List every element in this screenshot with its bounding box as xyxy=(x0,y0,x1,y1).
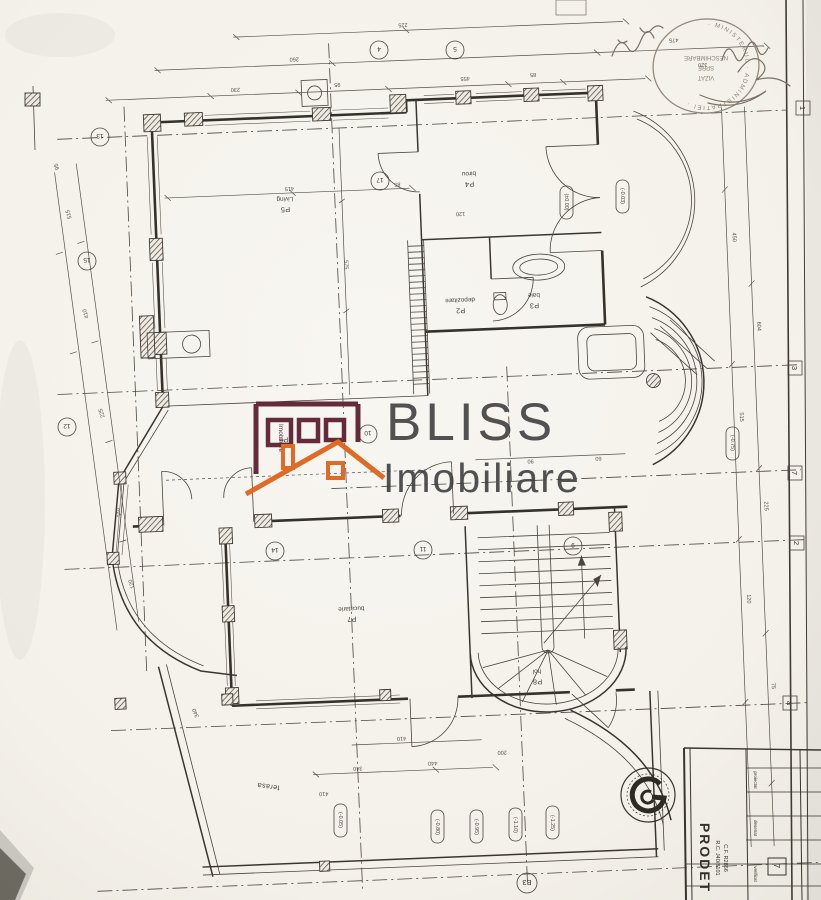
stamp-inner-line-1: VIZAT xyxy=(697,74,714,80)
room-name-living: Living xyxy=(276,195,293,203)
dim-text: 230 xyxy=(231,86,241,92)
tag-13: 13 xyxy=(96,132,104,139)
dim-text: 415 xyxy=(285,185,295,191)
level-003: (-0.03) xyxy=(619,188,625,204)
titleblock-row-3: verificat xyxy=(753,866,758,882)
room-name-depozitare: depozitare xyxy=(445,296,476,304)
level-110: (-1.10) xyxy=(512,817,518,833)
tag-10: 10 xyxy=(364,429,372,436)
dim-text: 340 xyxy=(353,765,363,771)
dim-text: 260 xyxy=(289,56,299,62)
dim-text: 410 xyxy=(397,735,407,741)
titleblock-row-2: desenat xyxy=(753,820,758,837)
dim-text: 515 xyxy=(738,412,744,422)
dim-text: 75 xyxy=(770,683,776,689)
dim-text: 450 xyxy=(731,232,737,242)
titleblock-reg1: R.C. J40/8101 xyxy=(714,840,720,875)
room-label-p2: P2 xyxy=(455,306,465,315)
dim-text: 475 xyxy=(669,36,679,42)
dim-text: 604 xyxy=(755,322,761,332)
level-000: (±0.00) xyxy=(563,193,569,210)
level-075: (-0.75) xyxy=(729,435,735,451)
grid-bubble-b3: B3 xyxy=(522,878,531,887)
stamp-inner-line-3: NESCHIMBARE xyxy=(684,54,728,60)
scanned-floor-plan: 225 260 475 230 95 455 85 320 450 604 51… xyxy=(0,0,821,900)
room-label-p5: P5 xyxy=(280,205,290,214)
tag-17: 17 xyxy=(376,176,384,183)
room-label-p3: P3 xyxy=(529,301,539,310)
level-080: (-0.80) xyxy=(434,819,440,835)
sheet-number: 7 xyxy=(772,864,781,869)
room-name-baie: baie xyxy=(527,291,540,298)
watermark-line2: Imobiliare xyxy=(383,455,581,501)
room-name-birou: birou xyxy=(461,170,476,178)
dim-text: 120 xyxy=(745,594,751,604)
dim-text: 410 xyxy=(319,790,329,796)
tag-5: 5 xyxy=(453,45,457,52)
dim-text: 200 xyxy=(497,749,507,755)
dim-text: 440 xyxy=(428,760,438,766)
room-name-bucatarie: bucatarie xyxy=(338,604,365,612)
watermark-line1: BLISS xyxy=(386,393,556,452)
titleblock-company: PRODET xyxy=(697,823,713,893)
dim-text: 95 xyxy=(334,81,340,87)
room-name-hol: hol xyxy=(533,667,542,674)
grid-bubble-2: 2 xyxy=(792,541,801,545)
floor-plan-canvas: 225 260 475 230 95 455 85 320 450 604 51… xyxy=(0,0,821,900)
level-095: (-0.95) xyxy=(473,819,479,835)
dim-text: 85 xyxy=(530,71,536,77)
titleblock-row-1: proiectat xyxy=(753,771,758,789)
tag-14: 14 xyxy=(271,546,279,553)
room-label-p4: P4 xyxy=(464,180,474,189)
grid-bubble-7: 7 xyxy=(790,471,799,475)
dim-text: 225 xyxy=(398,21,408,27)
tag-4: 4 xyxy=(377,45,381,52)
room-label-p7: P7 xyxy=(347,615,357,624)
level-125: (-1.25) xyxy=(549,815,555,831)
tag-12: 12 xyxy=(63,422,71,429)
dim-text: 225 xyxy=(762,501,768,511)
level-005: (-0.05) xyxy=(337,812,343,828)
dim-text: 85 xyxy=(394,181,400,187)
grid-bubble-1: 1 xyxy=(798,106,807,110)
tag-15: 15 xyxy=(83,256,91,263)
stamp-inner-line-2: SPRE xyxy=(698,64,714,70)
room-label-p8: P8 xyxy=(532,677,542,686)
grid-bubble-3: 3 xyxy=(790,366,799,370)
tag-11: 11 xyxy=(419,545,426,552)
dim-text: 60 xyxy=(595,455,601,461)
titleblock-reg2: C.F. R2856 xyxy=(722,844,728,872)
tag-9: 9 xyxy=(571,541,575,548)
dim-text: 455 xyxy=(460,75,470,81)
dim-text: 120 xyxy=(456,210,466,216)
dim-text: 575 xyxy=(342,260,348,270)
